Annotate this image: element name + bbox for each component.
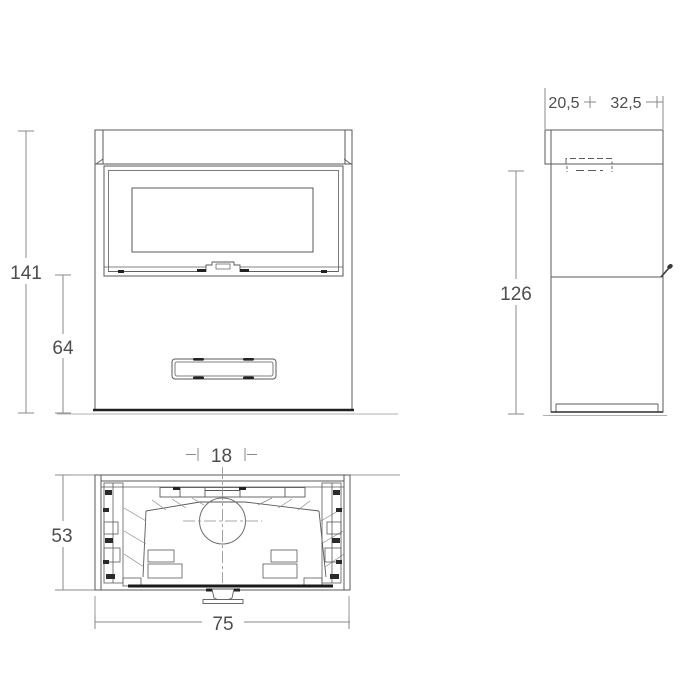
dim-label-75: 75 (212, 614, 233, 635)
dim-label-53: 53 (51, 526, 72, 547)
side-body-outline (551, 130, 663, 412)
dim-label-18: 18 (211, 446, 232, 467)
side-cap-overhang (545, 130, 551, 164)
drawing-svg: 141 64 (0, 0, 700, 700)
dim-side-depths: 20,5 32,5 (545, 88, 663, 129)
plan-view (55, 467, 400, 604)
plan-latch-plate (203, 600, 243, 604)
dim-label-126: 126 (500, 284, 532, 305)
front-view (57, 130, 398, 414)
dim-side-height: 126 (499, 171, 533, 414)
side-view (543, 130, 674, 416)
dim-label-32-5: 32,5 (610, 95, 641, 112)
dim-label-20-5: 20,5 (548, 95, 579, 112)
dim-label-141: 141 (10, 263, 42, 284)
dim-label-64: 64 (52, 338, 74, 359)
dim-plan-flue: 18 (186, 446, 257, 467)
dim-front-base-height: 64 (49, 275, 77, 413)
dim-plan-depth: 53 (46, 475, 95, 590)
plan-latch-bracket (212, 589, 234, 600)
technical-drawing-canvas: 141 64 (0, 0, 700, 700)
dim-front-total-height: 141 (10, 131, 42, 413)
